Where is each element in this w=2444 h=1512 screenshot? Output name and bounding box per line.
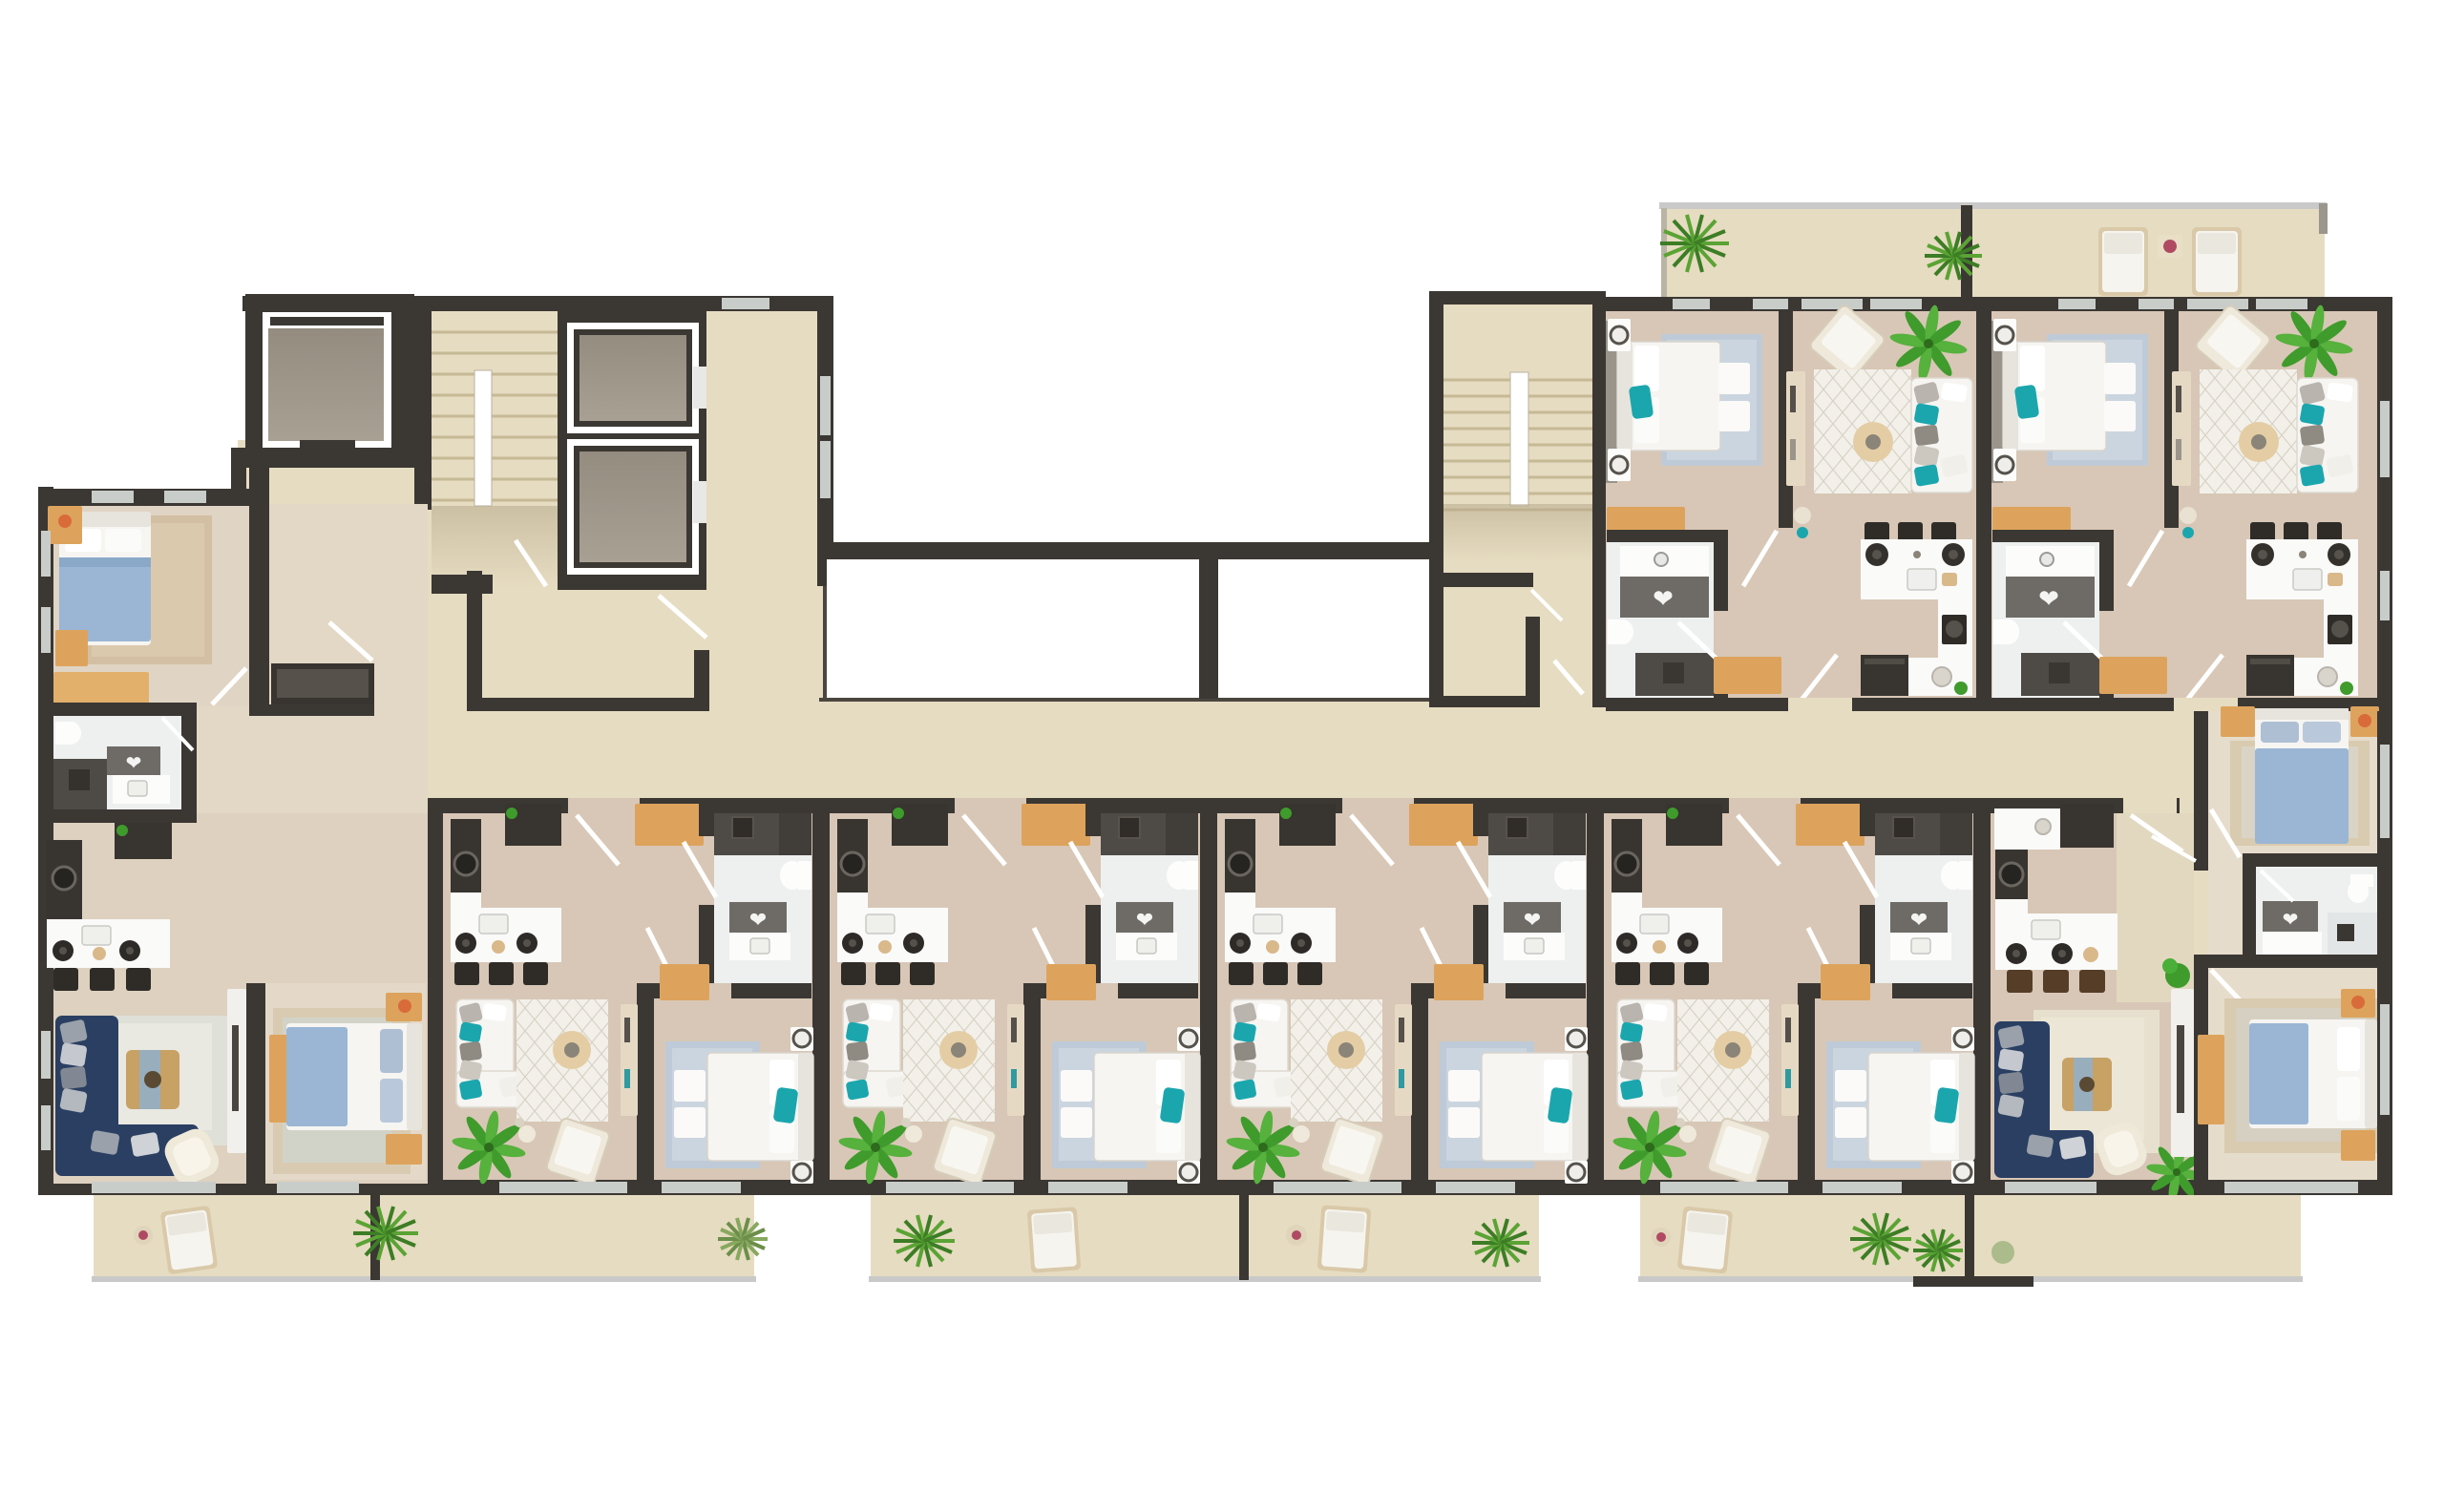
svg-text:❤: ❤ — [126, 753, 142, 774]
svg-text:❤: ❤ — [1524, 908, 1541, 932]
svg-text:❤: ❤ — [2283, 910, 2299, 931]
svg-text:❤: ❤ — [1136, 908, 1153, 932]
svg-text:❤: ❤ — [749, 908, 767, 932]
svg-text:❤: ❤ — [2038, 584, 2059, 613]
svg-text:❤: ❤ — [1653, 584, 1674, 613]
svg-text:❤: ❤ — [1910, 908, 1928, 932]
